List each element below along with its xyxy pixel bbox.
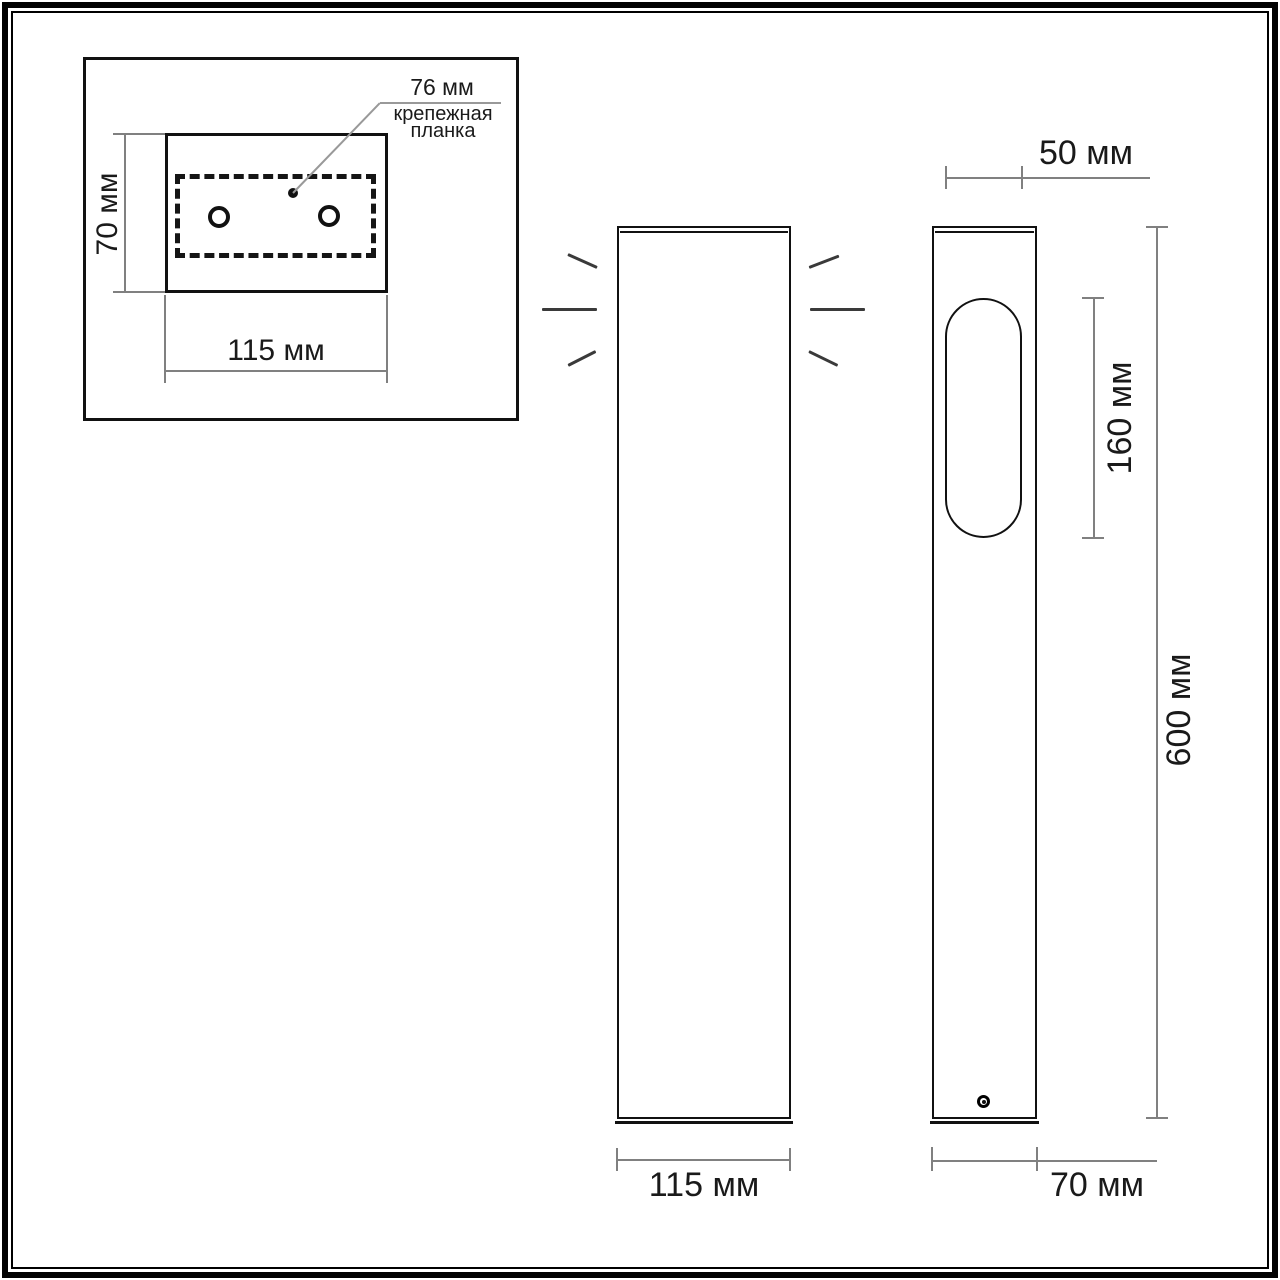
dimension-line — [946, 177, 1150, 179]
front-view-body — [617, 226, 791, 1119]
bracket-width-label: 76 мм — [380, 74, 504, 101]
front-view-base-line — [615, 1121, 793, 1124]
dimension-tick — [113, 291, 165, 293]
screw-center-dot — [982, 1100, 986, 1104]
dimension-tick — [931, 1147, 933, 1171]
plate-width-label: 115 мм — [196, 334, 356, 368]
mounting-hole-right — [318, 205, 340, 227]
body-depth-label: 70 мм — [1017, 1166, 1177, 1205]
window-height-label: 160 мм — [1101, 348, 1137, 488]
light-window-outline — [945, 298, 1022, 538]
front-view-top-seam — [620, 231, 788, 233]
dimension-line — [1093, 298, 1095, 538]
dimension-line — [1156, 227, 1158, 1118]
light-ray-right-middle — [810, 308, 865, 311]
mounting-hole-left — [208, 206, 230, 228]
light-ray-left-middle — [542, 308, 597, 311]
dimension-line — [617, 1159, 791, 1161]
total-height-label: 600 мм — [1160, 630, 1196, 790]
side-view-base-line — [930, 1121, 1039, 1124]
plate-height-label: 70 мм — [91, 144, 121, 284]
dimension-line — [124, 134, 126, 293]
mounting-bracket-dashed-outline — [175, 174, 376, 258]
front-width-label: 115 мм — [624, 1166, 784, 1205]
technical-drawing-canvas: 76 мм крепежная планка 70 мм 115 мм 115 … — [0, 0, 1280, 1280]
dimension-line — [165, 370, 387, 372]
bracket-name-line2: планка — [373, 123, 513, 140]
top-width-label: 50 мм — [1016, 134, 1156, 173]
dimension-line — [931, 1160, 1157, 1162]
side-view-top-seam — [935, 231, 1034, 233]
dimension-tick — [113, 133, 165, 135]
